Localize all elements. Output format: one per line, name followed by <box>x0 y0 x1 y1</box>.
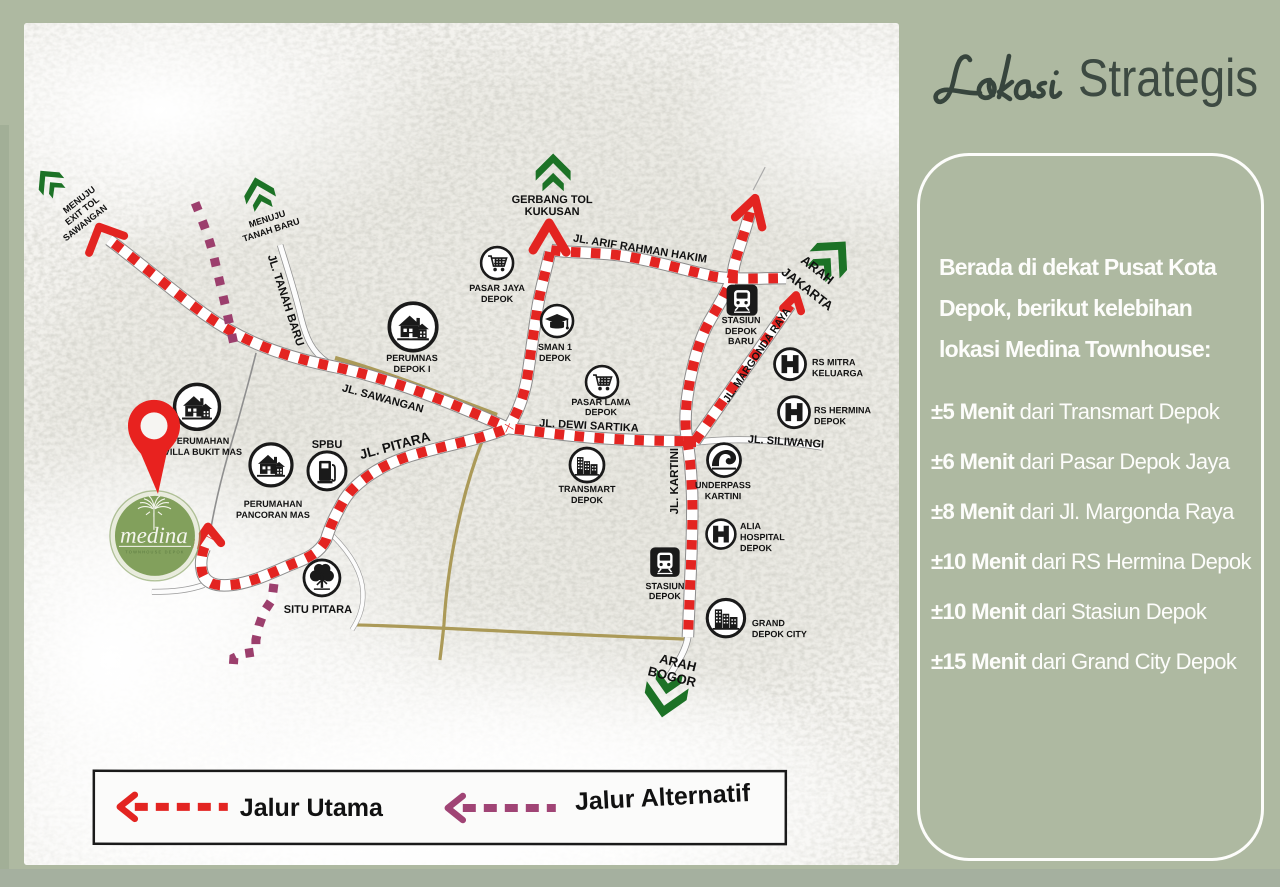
svg-text:KARTINI: KARTINI <box>705 491 742 501</box>
svg-text:HOSPITAL: HOSPITAL <box>740 532 785 542</box>
svg-text:DEPOK: DEPOK <box>481 294 514 304</box>
svg-text:PERUMAHAN: PERUMAHAN <box>244 499 303 509</box>
svg-text:DEPOK I: DEPOK I <box>394 364 431 374</box>
svg-text:RS HERMINA: RS HERMINA <box>814 405 872 415</box>
svg-text:medina: medina <box>120 523 188 549</box>
svg-text:TRANSMART: TRANSMART <box>558 484 616 494</box>
svg-text:Strategis: Strategis <box>1078 49 1258 108</box>
svg-text:DEPOK: DEPOK <box>814 416 847 426</box>
svg-text:PASAR LAMA: PASAR LAMA <box>571 397 631 407</box>
svg-text:PASAR JAYA: PASAR JAYA <box>469 283 525 293</box>
svg-text:ALIA: ALIA <box>740 521 762 531</box>
svg-text:DEPOK: DEPOK <box>725 326 758 336</box>
svg-text:TOWNHOUSE DEPOK: TOWNHOUSE DEPOK <box>125 549 185 554</box>
svg-text:BARU: BARU <box>728 336 754 346</box>
svg-text:GERBANG TOL: GERBANG TOL <box>512 194 593 206</box>
svg-text:DEPOK: DEPOK <box>649 591 682 601</box>
svg-text:PERUMAHAN: PERUMAHAN <box>171 436 230 446</box>
svg-text:SITU PITARA: SITU PITARA <box>284 604 352 616</box>
svg-text:STASIUN: STASIUN <box>646 581 685 591</box>
svg-text:KUKUSAN: KUKUSAN <box>525 206 580 218</box>
svg-text:DEPOK: DEPOK <box>740 543 773 553</box>
svg-text:UNDERPASS: UNDERPASS <box>695 480 751 490</box>
svg-text:DEPOK: DEPOK <box>571 495 604 505</box>
svg-text:VILLA BUKIT MAS: VILLA BUKIT MAS <box>164 447 242 457</box>
svg-text:DEPOK: DEPOK <box>585 407 618 417</box>
svg-text:KELUARGA: KELUARGA <box>812 368 864 378</box>
svg-text:JL. KARTINI: JL. KARTINI <box>669 448 681 514</box>
svg-text:GRAND: GRAND <box>752 618 786 628</box>
svg-text:SPBU: SPBU <box>312 439 343 451</box>
svg-text:STASIUN: STASIUN <box>722 315 761 325</box>
svg-text:DEPOK: DEPOK <box>539 353 572 363</box>
svg-text:DEPOK CITY: DEPOK CITY <box>752 629 807 639</box>
svg-text:RS MITRA: RS MITRA <box>812 357 856 367</box>
svg-text:Jalur Utama: Jalur Utama <box>240 794 384 822</box>
svg-text:PANCORAN MAS: PANCORAN MAS <box>236 510 310 520</box>
svg-text:SMAN 1: SMAN 1 <box>538 342 572 352</box>
svg-text:PERUMNAS: PERUMNAS <box>386 353 438 363</box>
